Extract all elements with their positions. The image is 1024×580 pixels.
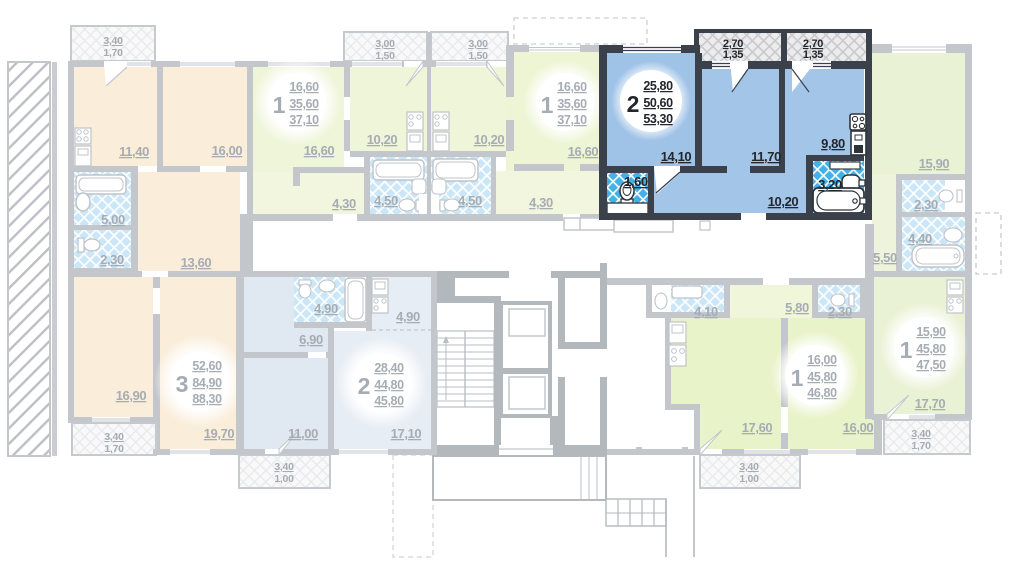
svg-text:52,60: 52,60: [192, 359, 222, 373]
svg-text:3: 3: [176, 371, 189, 397]
svg-text:1: 1: [273, 92, 286, 118]
svg-text:45,80: 45,80: [374, 394, 404, 408]
svg-text:15,90: 15,90: [919, 156, 950, 171]
svg-text:37,10: 37,10: [557, 113, 587, 127]
svg-text:3,40: 3,40: [103, 35, 123, 47]
svg-text:17,70: 17,70: [915, 396, 946, 411]
svg-text:5,80: 5,80: [785, 300, 809, 315]
svg-text:2: 2: [627, 91, 640, 117]
svg-text:16,60: 16,60: [557, 80, 587, 94]
svg-text:16,60: 16,60: [568, 144, 599, 159]
svg-text:17,60: 17,60: [742, 420, 773, 435]
svg-text:5,00: 5,00: [101, 212, 125, 227]
svg-text:3,20: 3,20: [818, 177, 842, 192]
svg-text:10,20: 10,20: [367, 132, 398, 147]
svg-text:15,90: 15,90: [916, 325, 946, 339]
svg-text:16,90: 16,90: [116, 388, 147, 403]
svg-text:4,90: 4,90: [396, 309, 420, 324]
svg-text:1: 1: [900, 337, 913, 363]
svg-text:19,70: 19,70: [204, 426, 235, 441]
svg-text:25,80: 25,80: [643, 79, 673, 93]
svg-text:16,00: 16,00: [212, 143, 243, 158]
svg-text:9,80: 9,80: [821, 136, 845, 151]
svg-text:1: 1: [791, 365, 804, 391]
svg-text:1,70: 1,70: [104, 443, 124, 455]
svg-text:16,00: 16,00: [807, 353, 837, 367]
svg-text:1,70: 1,70: [103, 47, 123, 59]
svg-text:1: 1: [541, 92, 554, 118]
svg-text:17,10: 17,10: [391, 426, 422, 441]
svg-text:53,30: 53,30: [643, 112, 673, 126]
svg-text:2,30: 2,30: [828, 304, 852, 319]
svg-text:16,00: 16,00: [843, 420, 874, 435]
svg-text:28,40: 28,40: [374, 361, 404, 375]
svg-text:6,90: 6,90: [299, 332, 323, 347]
svg-text:35,60: 35,60: [557, 97, 587, 111]
svg-text:46,80: 46,80: [807, 386, 837, 400]
svg-text:1,35: 1,35: [723, 49, 743, 61]
svg-text:3,00: 3,00: [468, 38, 488, 50]
svg-text:3,00: 3,00: [375, 38, 395, 50]
svg-text:50,60: 50,60: [643, 96, 673, 110]
svg-text:37,10: 37,10: [289, 113, 319, 127]
svg-text:16,60: 16,60: [289, 80, 319, 94]
svg-text:10,20: 10,20: [474, 132, 505, 147]
svg-text:1,70: 1,70: [911, 440, 931, 452]
svg-text:11,40: 11,40: [119, 144, 149, 159]
svg-text:4,50: 4,50: [458, 193, 482, 208]
svg-text:4,30: 4,30: [529, 195, 553, 210]
svg-text:4,10: 4,10: [694, 304, 718, 319]
svg-text:88,30: 88,30: [192, 392, 222, 406]
svg-text:13,60: 13,60: [181, 255, 212, 270]
svg-text:11,70: 11,70: [751, 149, 781, 164]
svg-text:1,35: 1,35: [803, 49, 823, 61]
svg-text:11,00: 11,00: [288, 426, 318, 441]
svg-text:47,50: 47,50: [916, 358, 946, 372]
svg-text:1,50: 1,50: [375, 50, 395, 62]
svg-text:2,30: 2,30: [100, 252, 124, 267]
svg-text:3,40: 3,40: [911, 428, 931, 440]
svg-text:2,30: 2,30: [914, 197, 938, 212]
svg-text:3,40: 3,40: [739, 461, 759, 473]
svg-text:14,10: 14,10: [661, 149, 692, 164]
svg-text:10,20: 10,20: [768, 194, 799, 209]
svg-text:1,00: 1,00: [739, 473, 759, 485]
svg-text:44,80: 44,80: [374, 378, 404, 392]
svg-text:45,80: 45,80: [807, 370, 837, 384]
svg-text:4,90: 4,90: [314, 301, 338, 316]
svg-text:3,40: 3,40: [104, 431, 124, 443]
svg-text:84,90: 84,90: [192, 376, 222, 390]
svg-text:1,50: 1,50: [468, 50, 488, 62]
svg-text:1,60: 1,60: [624, 174, 648, 189]
svg-text:4,40: 4,40: [908, 231, 932, 246]
svg-text:16,60: 16,60: [304, 143, 335, 158]
svg-text:35,60: 35,60: [289, 97, 319, 111]
svg-text:5,50: 5,50: [873, 250, 897, 265]
svg-text:4,30: 4,30: [332, 196, 356, 211]
svg-text:2: 2: [358, 373, 371, 399]
svg-text:3,40: 3,40: [274, 461, 294, 473]
svg-text:4,50: 4,50: [374, 193, 398, 208]
svg-text:45,80: 45,80: [916, 342, 946, 356]
svg-text:1,00: 1,00: [274, 473, 294, 485]
